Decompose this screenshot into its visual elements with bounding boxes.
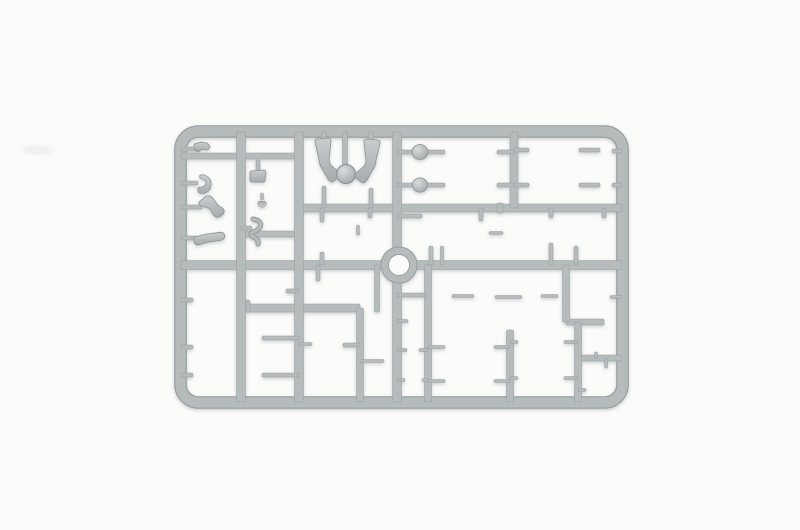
sprue-stub [497, 183, 514, 187]
sprue-group [22, 132, 623, 403]
sprue-stub [360, 360, 384, 363]
sprue-stub [181, 298, 193, 302]
sprue-stub [320, 252, 324, 265]
sprue-stub [368, 208, 372, 218]
sprue-stub [579, 148, 600, 152]
sprue-photo [0, 0, 800, 530]
sprue-stub [419, 349, 428, 352]
disc-base-shape [412, 145, 428, 160]
sprue-stub [541, 295, 558, 298]
center-ring-hole [389, 255, 410, 276]
sprue-stub [595, 352, 598, 358]
sprue-stub [241, 226, 252, 230]
sprue-casting [181, 132, 623, 403]
sprue-stub [286, 289, 299, 293]
disc-base-shape [412, 178, 427, 192]
sprue-runner [300, 204, 622, 212]
sprue-runner [343, 132, 348, 168]
sprue-stub [397, 214, 422, 218]
sprue-runner [510, 132, 518, 208]
sprue-stub [397, 349, 407, 352]
sprue-stub [181, 181, 198, 185]
sprue-stub [246, 300, 250, 312]
sprue-runner [357, 308, 364, 402]
head-shape [337, 165, 356, 184]
sprue-stub [494, 380, 510, 383]
sprue-stub [426, 183, 445, 187]
sprue-stub [510, 341, 518, 344]
sprue-stub [549, 243, 553, 265]
kneeling-leg-shape [355, 139, 380, 183]
sprue-stub [299, 343, 312, 346]
sprue-runner [497, 203, 503, 213]
sprue-stub [261, 193, 264, 200]
sprue-stub [610, 296, 622, 299]
sprue-stub [510, 377, 518, 380]
part-straight-arm [194, 232, 226, 245]
sprue-stub [612, 183, 622, 187]
sprue-stub [489, 232, 503, 235]
sprue-stub [343, 343, 360, 347]
sprue-stub [316, 265, 320, 281]
sprue-stub [397, 293, 426, 297]
part-bracket [194, 142, 210, 152]
sprue-stub [422, 379, 428, 382]
sprue-stub [397, 379, 405, 382]
sprue-stub [479, 208, 483, 221]
sprue-runner [578, 355, 622, 361]
photo-background [0, 0, 800, 530]
part-small-knob [258, 201, 267, 207]
sprue-stub [602, 208, 606, 218]
sprue-stub [181, 373, 193, 377]
sprue-stub [514, 148, 529, 152]
bracket-shape [194, 142, 210, 152]
sprue-stub [428, 346, 445, 349]
sprue-stub [262, 336, 299, 340]
part-head [337, 165, 356, 184]
sprue-stub [494, 346, 510, 349]
sprue-stub [357, 225, 360, 235]
sprue-stub [429, 246, 433, 265]
sprue-stub [612, 149, 622, 153]
sprue-stub [549, 208, 553, 218]
part-equipment-box [250, 170, 266, 182]
part-kneeling-leg [355, 139, 380, 183]
sprue-stub [564, 341, 578, 344]
sprue-runner [295, 132, 304, 402]
sprue-stub [564, 377, 578, 380]
sprue-stub [578, 389, 586, 392]
sprue-stub [181, 205, 202, 209]
sprue-stub [495, 296, 522, 299]
sprue-stub [397, 320, 408, 323]
sprue-stub [452, 295, 474, 298]
sprue-stub [322, 186, 326, 208]
sprue-stub [397, 150, 414, 154]
sprue-stub [441, 246, 444, 265]
background-smudge [22, 145, 54, 155]
small-knob-shape [258, 201, 267, 207]
sprue-stub [426, 150, 445, 154]
straight-arm-shape [194, 232, 226, 245]
sprue-stub [579, 183, 600, 187]
sprue-stub [369, 188, 373, 208]
equipment-box-shape [250, 170, 266, 182]
sprue-stub [497, 150, 514, 154]
sprue-stub [181, 345, 193, 349]
sprue-stub [320, 208, 324, 222]
sprue-stub [574, 246, 578, 265]
part-disc-base [412, 145, 428, 160]
sprue-stub [256, 160, 260, 171]
sprue-runner [375, 265, 380, 312]
sprue-runner [563, 265, 570, 322]
sprue-runner [566, 319, 604, 325]
sprue-runner [237, 132, 246, 402]
sprue-stub [428, 380, 445, 383]
sprue-stub [262, 373, 299, 377]
sprue-stub [397, 183, 414, 187]
part-disc-base [412, 178, 427, 192]
sprue-stub [605, 358, 608, 368]
sprue-stub [514, 183, 529, 187]
